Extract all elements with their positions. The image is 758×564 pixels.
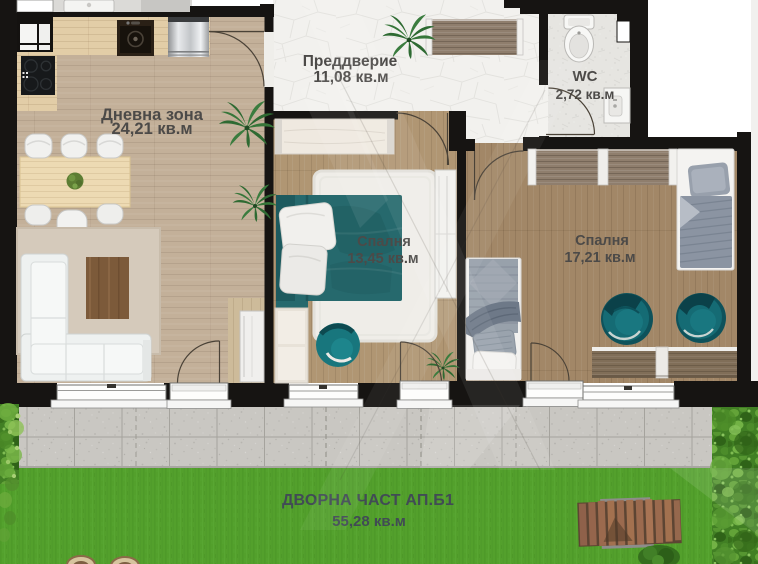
svg-text:ДВОРНА ЧАСТ АП.Б1: ДВОРНА ЧАСТ АП.Б1	[282, 492, 454, 509]
svg-text:24,21 кв.м: 24,21 кв.м	[111, 120, 192, 138]
svg-text:Спалня: Спалня	[575, 233, 629, 249]
svg-text:17,21 кв.м: 17,21 кв.м	[564, 250, 635, 266]
